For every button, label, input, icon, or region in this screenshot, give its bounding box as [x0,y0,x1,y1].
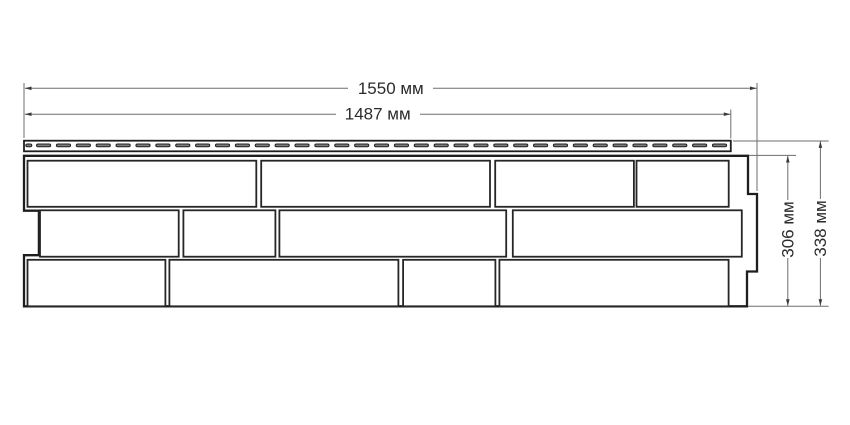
svg-text:306 мм: 306 мм [778,201,797,257]
svg-text:338 мм: 338 мм [811,200,830,256]
svg-text:1487 мм: 1487 мм [345,105,411,124]
svg-text:1550 мм: 1550 мм [358,79,424,98]
